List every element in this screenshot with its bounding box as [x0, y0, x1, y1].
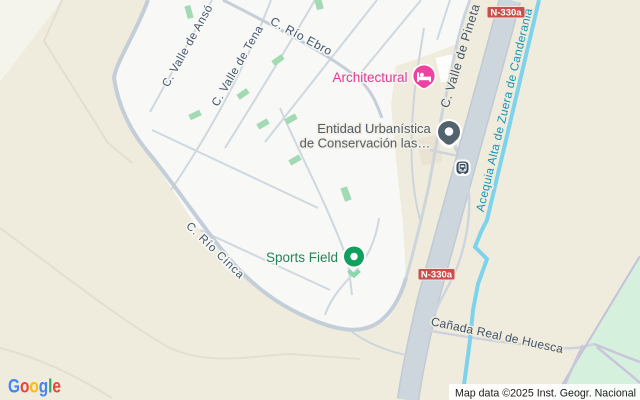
svg-text:N-330a: N-330a — [490, 8, 522, 19]
svg-text:Map data ©2025 Inst. Geogr. Na: Map data ©2025 Inst. Geogr. Nacional — [455, 388, 636, 400]
svg-text:Google: Google — [8, 377, 61, 398]
svg-text:de Conservación las…: de Conservación las… — [300, 136, 431, 151]
svg-text:N-330a: N-330a — [421, 270, 453, 281]
svg-text:Entidad Urbanística: Entidad Urbanística — [317, 121, 431, 136]
svg-text:Architectural: Architectural — [332, 70, 407, 85]
svg-text:Sports Field: Sports Field — [266, 250, 338, 265]
